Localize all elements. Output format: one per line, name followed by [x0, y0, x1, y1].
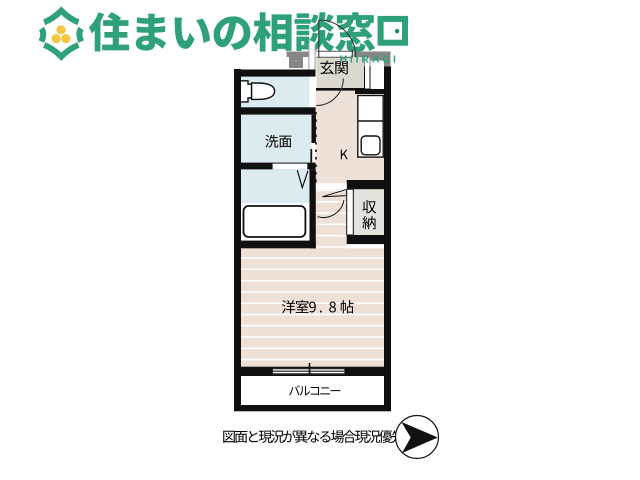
svg-text:HIIRAGI: HIIRAGI — [340, 53, 399, 65]
